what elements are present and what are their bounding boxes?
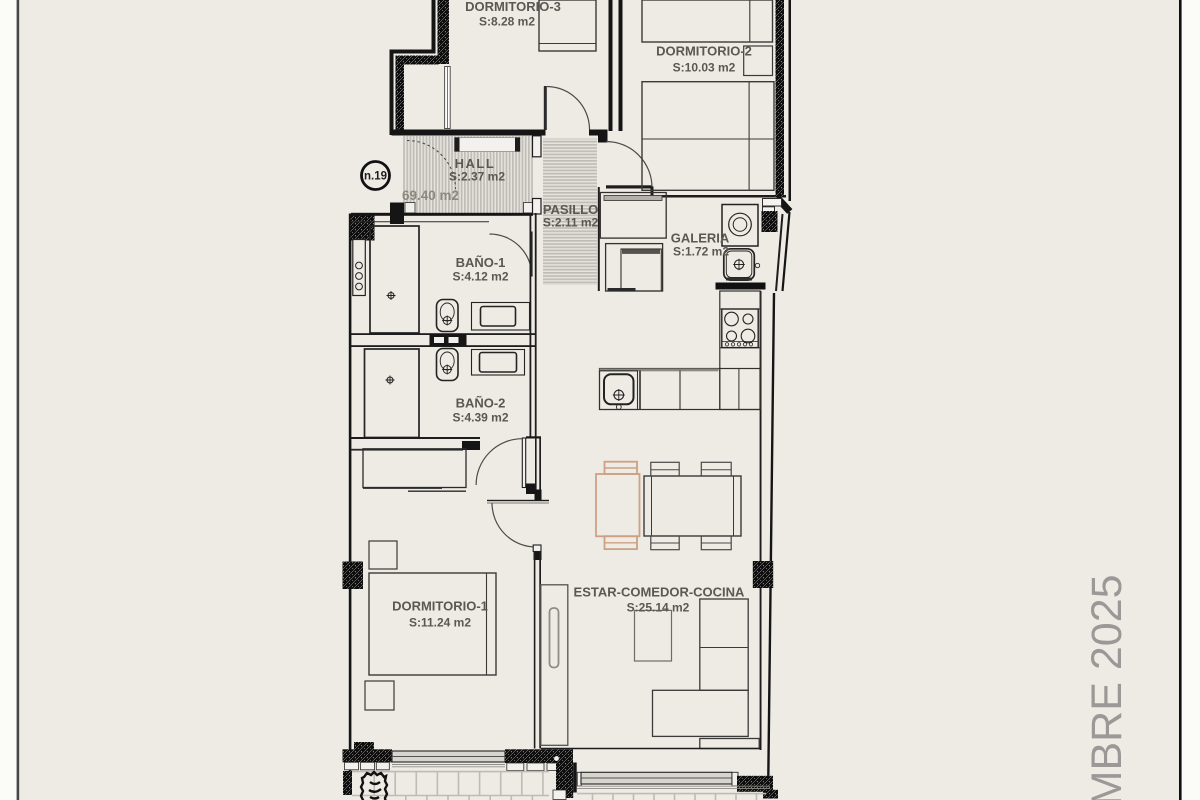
svg-text:BAÑO-2: BAÑO-2 bbox=[456, 396, 506, 411]
svg-text:ESTAR-COMEDOR-COCINA: ESTAR-COMEDOR-COCINA bbox=[574, 585, 746, 600]
svg-text:S:25.14 m2: S:25.14 m2 bbox=[627, 601, 690, 615]
svg-text:DORMITORIO-1: DORMITORIO-1 bbox=[392, 599, 488, 614]
svg-text:DORMITORIO-2: DORMITORIO-2 bbox=[656, 44, 752, 59]
svg-text:BAÑO-1: BAÑO-1 bbox=[456, 255, 506, 270]
svg-text:S:10.03 m2: S:10.03 m2 bbox=[673, 61, 736, 75]
svg-text:S:11.24 m2: S:11.24 m2 bbox=[409, 616, 471, 630]
svg-text:S:2.11 m2: S:2.11 m2 bbox=[543, 216, 599, 230]
svg-text:S:1.72 m2: S:1.72 m2 bbox=[673, 245, 729, 259]
svg-text:S:4.39 m2: S:4.39 m2 bbox=[452, 411, 508, 425]
svg-text:EMBRE 2025: EMBRE 2025 bbox=[1083, 574, 1131, 800]
svg-text:GALERIA: GALERIA bbox=[671, 231, 730, 246]
svg-text:S:8.28 m2: S:8.28 m2 bbox=[479, 15, 535, 29]
svg-text:DORMITORIO-3: DORMITORIO-3 bbox=[465, 0, 561, 14]
svg-text:69.40 m2: 69.40 m2 bbox=[402, 188, 459, 203]
svg-text:S:4.12 m2: S:4.12 m2 bbox=[452, 270, 508, 284]
svg-text:n.19: n.19 bbox=[364, 171, 387, 183]
svg-text:S:2.37 m2: S:2.37 m2 bbox=[449, 170, 505, 184]
